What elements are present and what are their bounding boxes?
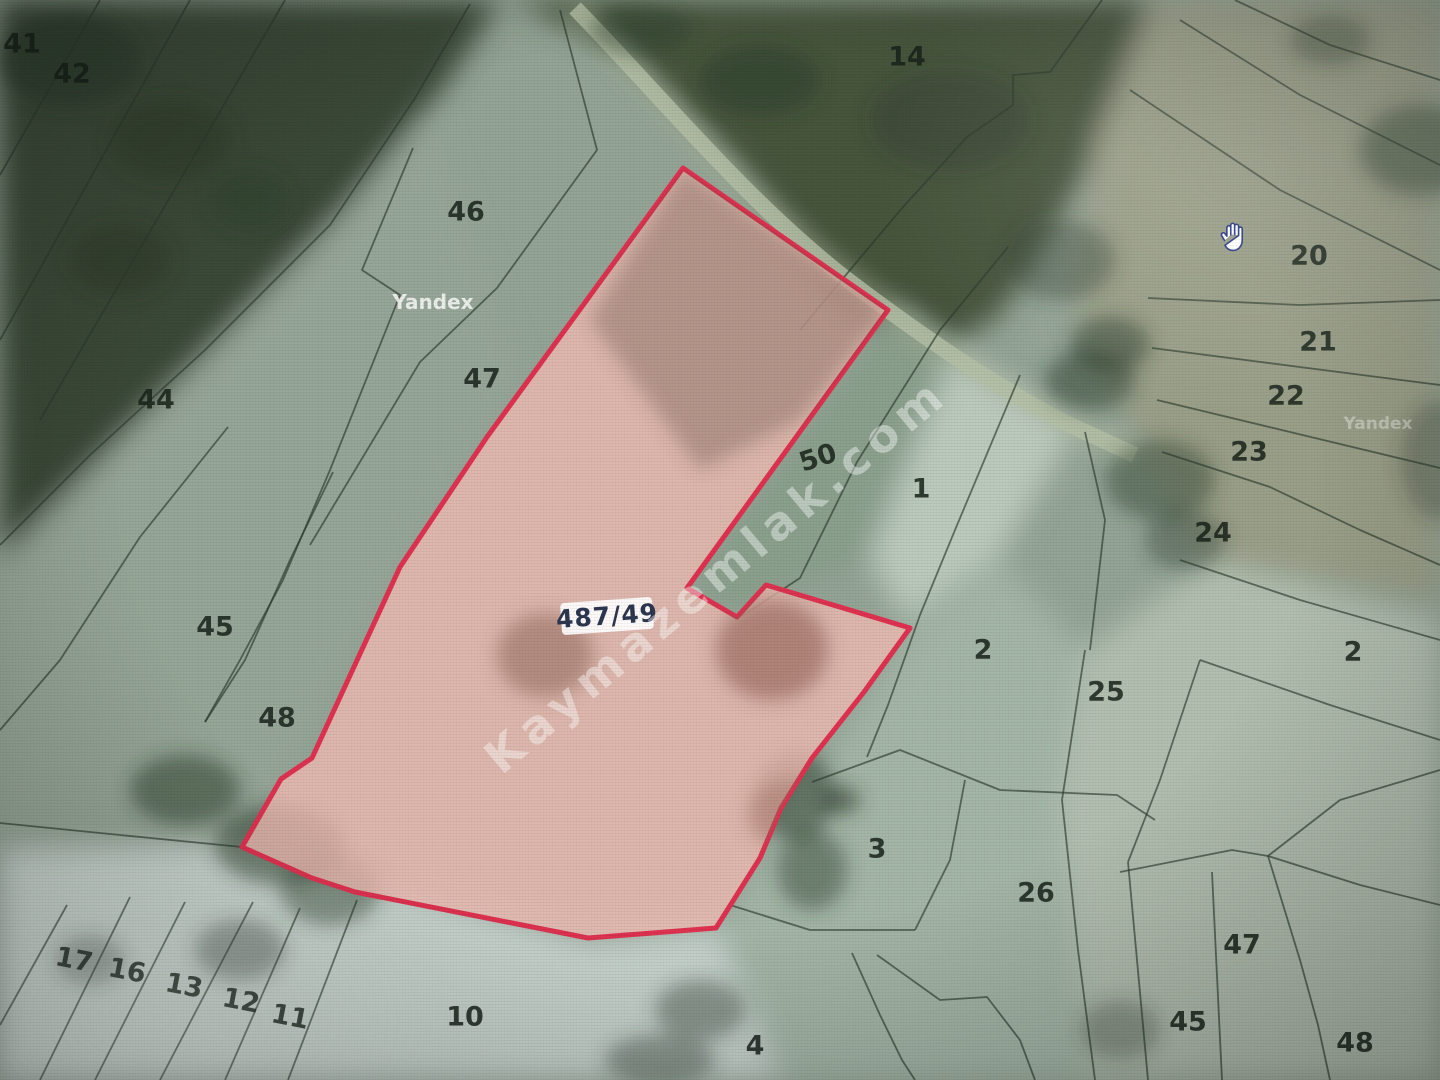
- screen-photo-of-map: 4142144620212244472350124452225483264717…: [0, 0, 1440, 1080]
- cadastral-map[interactable]: 4142144620212244472350124452225483264717…: [0, 0, 1440, 1080]
